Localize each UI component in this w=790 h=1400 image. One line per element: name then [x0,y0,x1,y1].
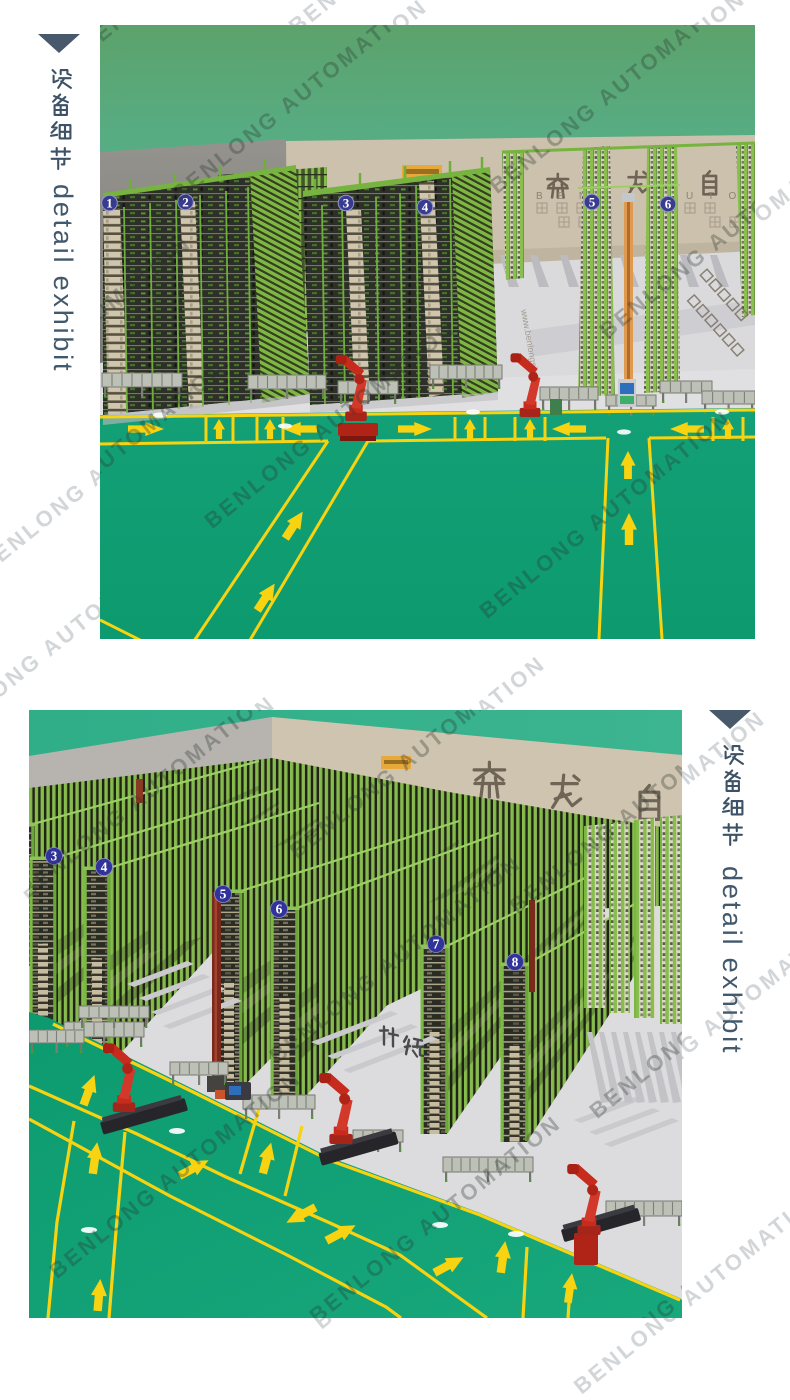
svg-text:6: 6 [276,902,283,917]
svg-text:3: 3 [343,196,350,211]
svg-text:6: 6 [665,197,672,212]
svg-text:5: 5 [220,887,227,902]
svg-text:U T O: U T O [686,191,742,202]
svg-text:4: 4 [101,860,108,875]
svg-text:8: 8 [512,955,519,970]
svg-text:1: 1 [106,196,113,211]
svg-text:4: 4 [422,200,429,215]
svg-text:5: 5 [589,195,596,210]
